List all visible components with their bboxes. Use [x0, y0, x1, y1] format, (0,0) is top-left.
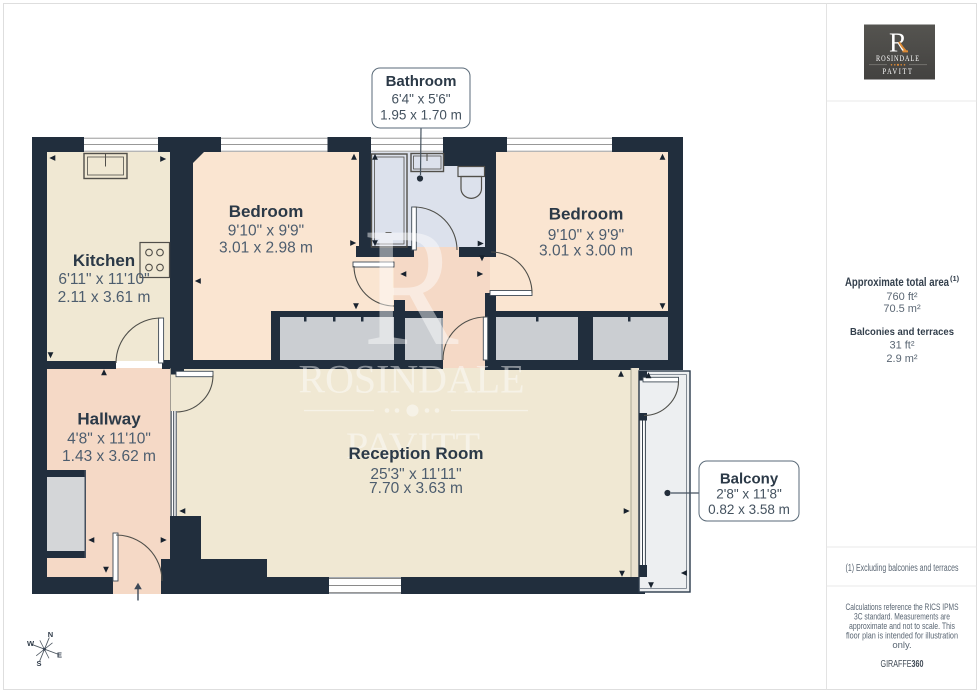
svg-text:0.82 x 3.58 m: 0.82 x 3.58 m [708, 502, 790, 517]
svg-text:W: W [27, 639, 35, 648]
svg-text:GIRAFFE360: GIRAFFE360 [881, 658, 924, 670]
svg-text:S: S [36, 659, 41, 668]
svg-text:3.01 x 3.00 m: 3.01 x 3.00 m [539, 243, 633, 260]
svg-text:(1) Excluding balconies and te: (1) Excluding balconies and terraces [846, 563, 959, 574]
svg-text:E: E [57, 651, 62, 660]
svg-text:ROSINDALE: ROSINDALE [876, 54, 920, 63]
svg-text:1.43 x 3.62 m: 1.43 x 3.62 m [62, 448, 156, 465]
svg-text:R: R [363, 192, 459, 380]
svg-text:Balconies and terraces: Balconies and terraces [850, 326, 954, 338]
svg-text:3.01 x 2.98 m: 3.01 x 2.98 m [219, 240, 313, 257]
svg-text:PAVITT: PAVITT [883, 67, 914, 76]
svg-text:Bathroom: Bathroom [386, 73, 457, 90]
svg-text:ROSINDALE: ROSINDALE [299, 357, 525, 402]
svg-text:6'11" x 11'10": 6'11" x 11'10" [58, 271, 149, 288]
svg-text:Approximate total area: Approximate total area [845, 277, 949, 289]
svg-text:R: R [889, 28, 907, 58]
svg-text:Bedroom: Bedroom [229, 202, 304, 221]
svg-text:only.: only. [892, 640, 911, 651]
svg-text:70.5 m²: 70.5 m² [883, 303, 921, 315]
svg-text:Balcony: Balcony [720, 471, 779, 488]
svg-text:N: N [48, 630, 53, 639]
svg-text:2.9 m²: 2.9 m² [886, 353, 918, 365]
svg-text:Hallway: Hallway [77, 410, 141, 429]
svg-text:2'8" x 11'8": 2'8" x 11'8" [716, 487, 782, 502]
svg-text:Bedroom: Bedroom [549, 205, 624, 224]
svg-text:Reception Room: Reception Room [348, 444, 483, 463]
svg-text:760 ft²: 760 ft² [886, 291, 918, 303]
svg-text:9'10" x 9'9": 9'10" x 9'9" [228, 223, 304, 240]
svg-text:2.11 x 3.61 m: 2.11 x 3.61 m [58, 289, 151, 306]
svg-text:1.95 x 1.70 m: 1.95 x 1.70 m [380, 108, 462, 123]
svg-text:31 ft²: 31 ft² [889, 340, 914, 352]
svg-text:(1): (1) [950, 274, 960, 283]
svg-text:7.70 x 3.63 m: 7.70 x 3.63 m [369, 480, 463, 497]
svg-text:4'8" x 11'10": 4'8" x 11'10" [67, 431, 151, 448]
svg-text:Kitchen: Kitchen [73, 251, 135, 270]
svg-text:9'10" x 9'9": 9'10" x 9'9" [548, 227, 624, 244]
svg-text:6'4" x 5'6": 6'4" x 5'6" [391, 92, 450, 107]
